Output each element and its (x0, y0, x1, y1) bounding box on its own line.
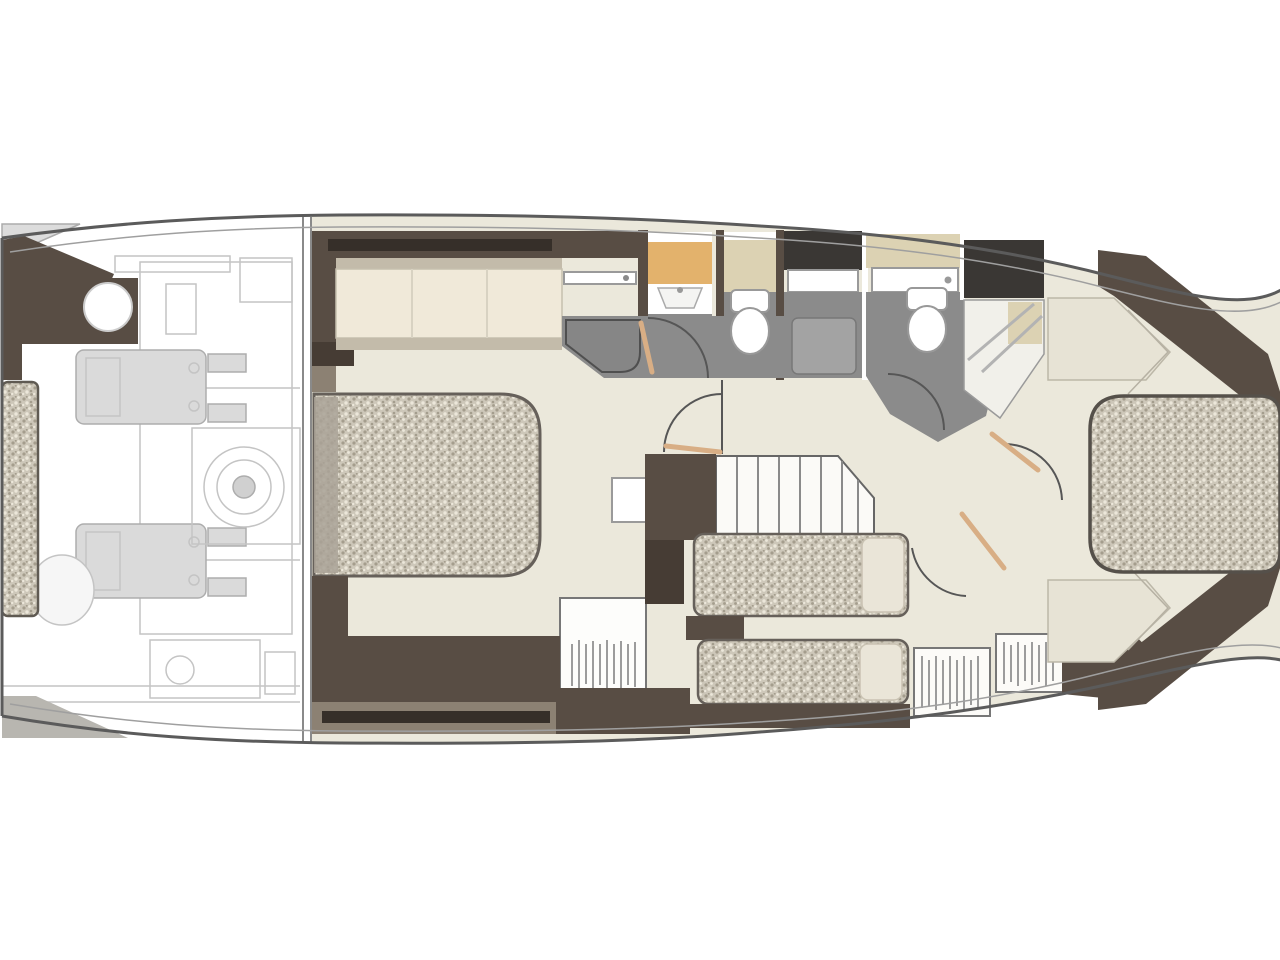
sofa (336, 258, 562, 350)
hull-window-left (312, 366, 336, 392)
bottom-window-slot (322, 711, 550, 723)
counter-beige (724, 240, 776, 292)
stern-side-wall (2, 344, 22, 380)
wardrobe-hanging-locker (560, 598, 646, 690)
swim-platform-sunpad (2, 382, 38, 616)
twin-bed-lower (698, 640, 908, 704)
beds-nightstand (686, 616, 744, 640)
double-bed (314, 394, 540, 576)
island-bed (1090, 396, 1280, 572)
head-wall-b (716, 230, 724, 316)
pillow (860, 644, 902, 700)
engine-room-bulkhead (302, 216, 312, 744)
toilet (731, 290, 769, 354)
head-wall-a (638, 230, 648, 316)
toilet-2 (907, 288, 947, 352)
stair-newel-wall (645, 454, 716, 540)
deck-hatch (30, 555, 94, 625)
cabin-left-wall (312, 258, 338, 342)
pillow (862, 538, 904, 612)
yacht-floor-plan (0, 0, 1280, 960)
nightstand (612, 478, 646, 522)
cabin-lower-left-wall (312, 576, 348, 638)
twin-bed-upper (694, 534, 908, 616)
bed-headboard (314, 397, 338, 573)
stern-seat-hatch (84, 283, 132, 331)
vanity-sink (648, 232, 712, 314)
stair-newel-wall-2 (645, 540, 684, 604)
cabin-bottom-wall (312, 636, 560, 702)
dressing-shelf (564, 272, 636, 284)
utility-shower-niche (784, 231, 862, 378)
floor-plan-canvas (0, 0, 1280, 960)
top-window-slot (328, 239, 552, 251)
